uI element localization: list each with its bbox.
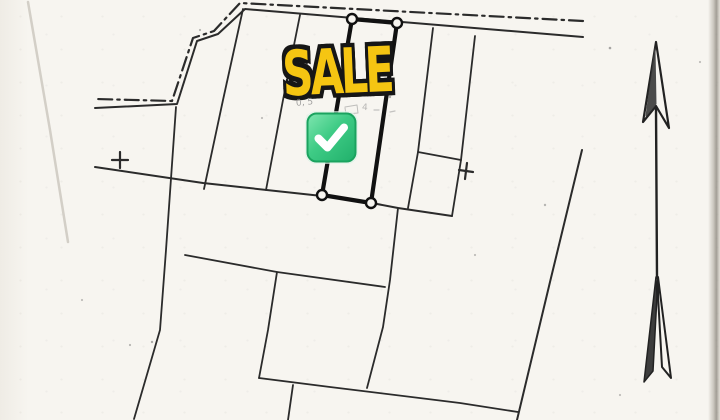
scan-speck <box>609 47 612 50</box>
pencil-note-left: 0, 5 <box>296 97 314 109</box>
boundary-divider-3 <box>408 28 433 208</box>
scan-crease <box>28 2 68 242</box>
pencil-scribble <box>390 111 395 112</box>
scan-speck <box>151 341 153 343</box>
sale-plot-corner-marker <box>392 18 402 28</box>
north-arrow-fletch-right <box>658 277 671 378</box>
boundary-divider-4 <box>461 36 475 160</box>
scan-speck <box>699 61 701 63</box>
small-plot-outline <box>418 152 461 216</box>
scan-speck <box>619 394 621 396</box>
north-arrow-fletch-left <box>644 277 657 382</box>
survey-plus-mark <box>465 163 467 179</box>
north-arrow-head-fill <box>646 48 656 116</box>
scan-speck <box>81 299 83 301</box>
boundary-west-long <box>134 107 176 419</box>
scan-speck <box>199 29 201 31</box>
sale-plot-corner-marker <box>317 190 327 200</box>
boundary-middle-vertical <box>367 208 398 388</box>
boundary-bottom-horizontal <box>259 378 518 412</box>
scan-speck <box>129 344 131 346</box>
pencil-note-right: 4 <box>362 103 368 113</box>
boundary-east-diagonal <box>517 150 582 420</box>
sale-plot-corner-marker <box>366 198 376 208</box>
scanned-plan-paper: SALE 0, 5 4 <box>0 0 720 420</box>
scan-speck <box>474 254 476 256</box>
check-icon <box>305 111 358 164</box>
boundary-lower-vertical <box>259 272 277 378</box>
scan-speck <box>261 117 263 119</box>
boundary-bottom-stub <box>288 385 293 420</box>
north-arrow-shaft <box>656 108 657 278</box>
boundary-middle-horizontal <box>185 255 385 287</box>
sale-plot-corner-marker <box>347 14 357 24</box>
scan-speck <box>544 204 546 206</box>
